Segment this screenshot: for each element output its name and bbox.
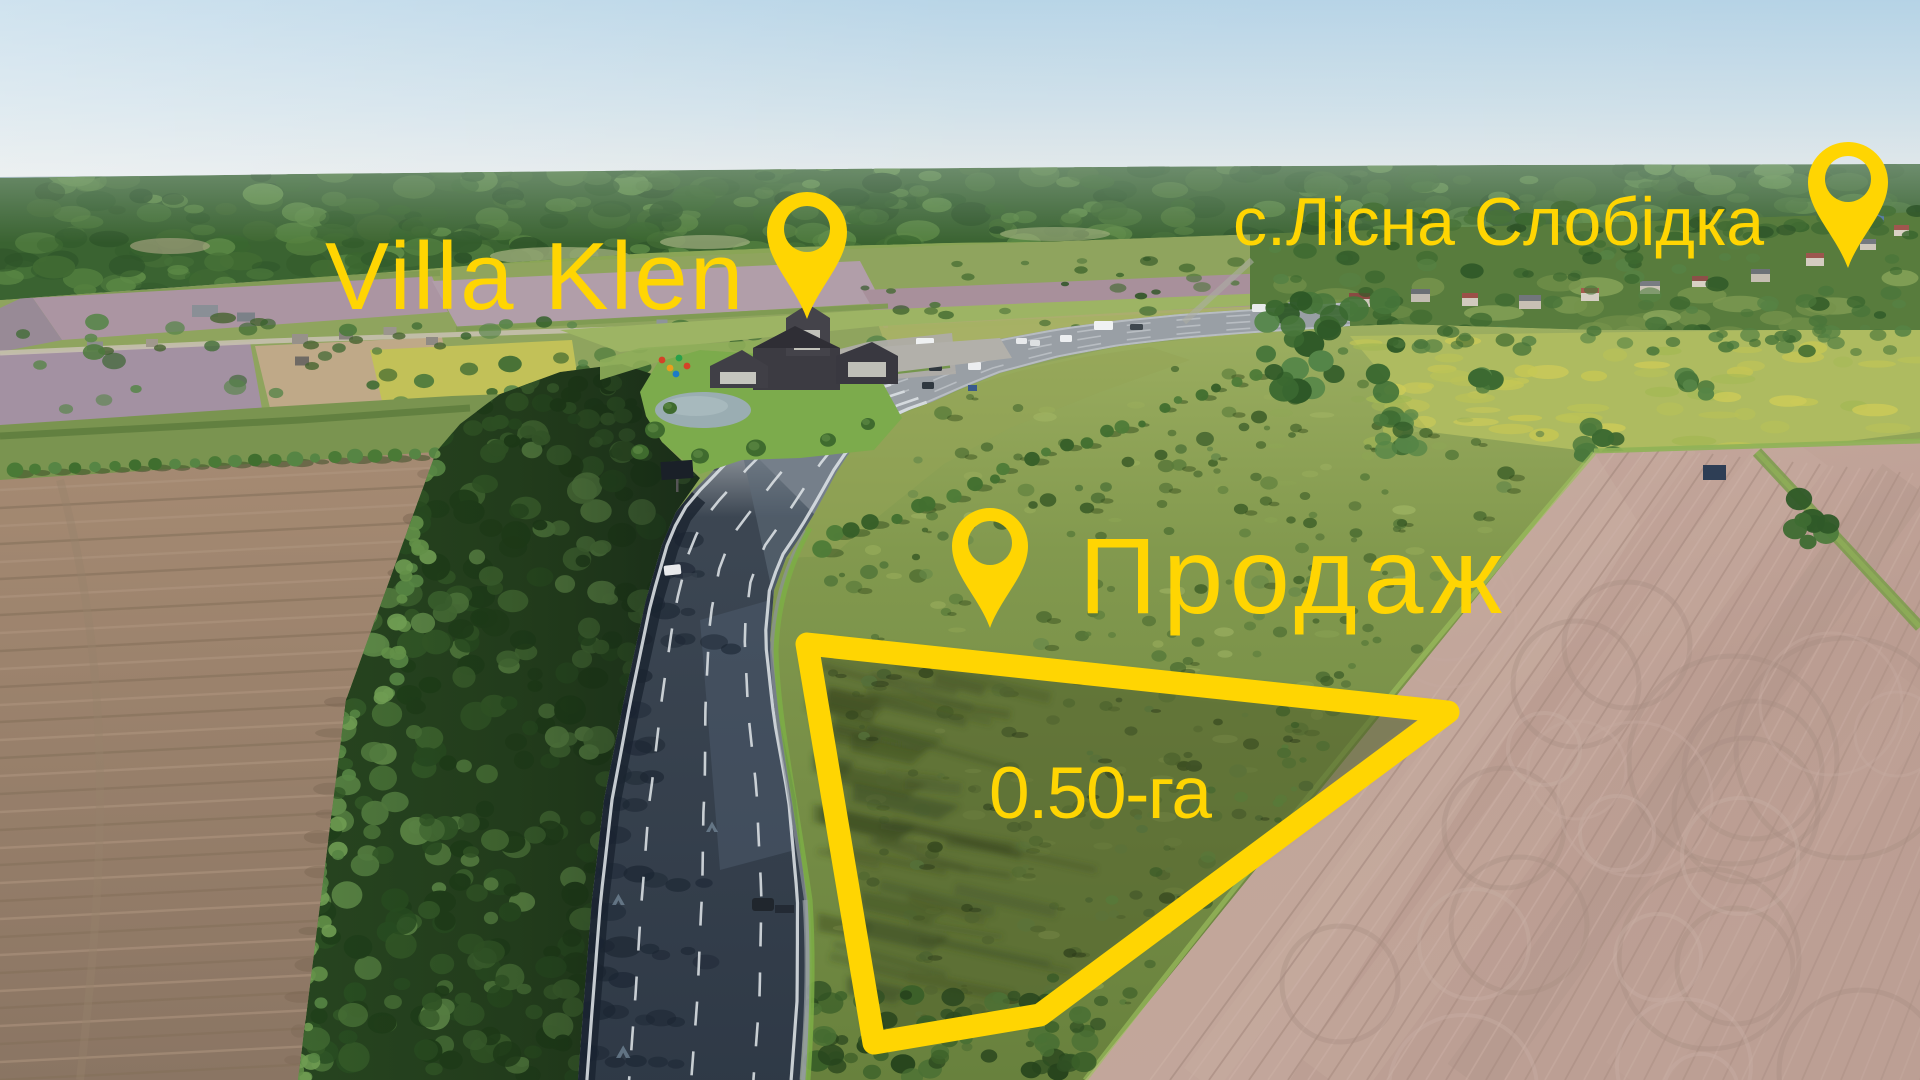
- svg-text:0.50-га: 0.50-га: [989, 753, 1212, 834]
- svg-text:с.Лісна Слобідка: с.Лісна Слобідка: [1233, 184, 1764, 260]
- svg-text:Продаж: Продаж: [1079, 515, 1509, 636]
- svg-text:Villa Klen: Villa Klen: [325, 223, 745, 330]
